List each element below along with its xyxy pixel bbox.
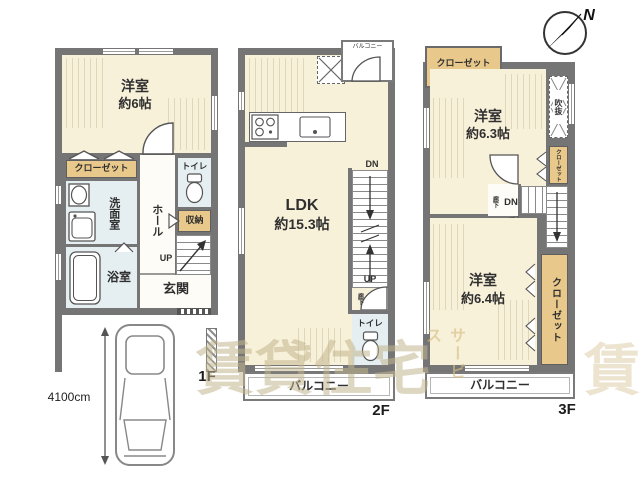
door-arc-icon xyxy=(351,56,381,82)
floor2-small-balcony-label: バルコニー xyxy=(342,44,393,52)
folding-door-icon xyxy=(536,150,548,182)
floor2-balcony: バルコニー xyxy=(243,372,395,401)
floor2-hallway-label: 廊下 xyxy=(355,289,363,309)
floor2-label: 2F xyxy=(366,402,396,421)
watermark-tile-char: 賃 xyxy=(584,326,640,407)
window xyxy=(255,366,343,371)
floor3-room2-size: 約6.4帖 xyxy=(446,291,520,307)
floor1-room-name: 洋室 xyxy=(105,78,165,96)
floor3-top-closet-label: クローゼット xyxy=(426,58,501,69)
floor1-toilet-label: トイレ xyxy=(178,161,211,172)
stove-icon xyxy=(251,114,279,140)
folding-door-icon xyxy=(66,150,137,160)
folding-door-icon xyxy=(525,316,537,352)
compass-north-label: N xyxy=(580,6,598,26)
toilet-icon xyxy=(360,331,381,362)
floor2-balcony-label: バルコニー xyxy=(289,379,349,394)
floor-plan: 洋室 約6帖 クローゼット 洗面室 浴室 ホール xyxy=(0,0,640,480)
door-arc-icon xyxy=(489,154,519,185)
door-arc-icon xyxy=(142,122,175,155)
window xyxy=(139,49,173,54)
floor2-ldk-size: 約15.3帖 xyxy=(256,216,348,234)
floor1-room-size: 約6帖 xyxy=(102,96,168,112)
floor3-void-label: 吹抜 xyxy=(553,90,563,124)
window xyxy=(239,208,244,254)
floor3-room1-name: 洋室 xyxy=(458,108,518,126)
floor1-label: 1F xyxy=(192,368,222,387)
floor2-toilet-label: トイレ xyxy=(352,318,388,329)
window xyxy=(56,186,61,204)
window xyxy=(424,108,429,148)
car-icon xyxy=(112,322,178,468)
kitchen-wall-stub xyxy=(245,142,287,147)
window xyxy=(424,282,429,334)
floor3-stairs-top xyxy=(521,186,547,214)
step-line xyxy=(140,273,175,275)
stairs-up-arrow-icon xyxy=(176,235,211,275)
toilet-icon xyxy=(184,173,205,204)
door-arc-icon xyxy=(360,286,388,311)
floor3-hallway-label: 廊下 xyxy=(490,192,498,212)
floor1-bath-label: 浴室 xyxy=(100,270,138,285)
storage-door-icon xyxy=(168,212,180,230)
floor3-balcony-label: バルコニー xyxy=(470,378,530,393)
folding-door-icon xyxy=(525,262,537,298)
washing-machine-icon xyxy=(68,183,90,207)
floor1-storage-label: 収納 xyxy=(178,215,211,226)
kitchen-sink-icon xyxy=(299,116,331,138)
floor3-mid-closet-label: クローゼット xyxy=(554,148,561,182)
floor1-up-label: UP xyxy=(156,253,176,264)
floor3-balcony: バルコニー xyxy=(425,372,575,399)
stairs-down-arrow-icon xyxy=(549,188,565,246)
window xyxy=(212,96,217,130)
entrance-door xyxy=(177,308,211,315)
floor1-washroom-label: 洗面室 xyxy=(106,186,120,240)
vanity-sink-icon xyxy=(68,211,96,242)
stairs-bottom-wall xyxy=(544,248,570,252)
window xyxy=(103,49,135,54)
site-wall xyxy=(55,315,62,372)
floor1-closet-label: クローゼット xyxy=(66,163,137,174)
floor3-label: 3F xyxy=(552,401,582,420)
floor1-hall-label: ホール xyxy=(149,194,163,246)
window xyxy=(569,84,574,124)
floor2-ldk-name: LDK xyxy=(262,196,342,216)
gate-hatch xyxy=(206,328,217,372)
floor3-room1-size: 約6.3帖 xyxy=(451,126,525,142)
floor3-right-closet-label: クローゼット xyxy=(548,262,561,358)
bath-door-icon xyxy=(113,242,135,254)
window xyxy=(239,92,244,110)
stairs-arrows-icon xyxy=(352,170,388,288)
floor2-up-label: UP xyxy=(358,274,382,285)
window xyxy=(56,254,61,280)
bathtub-icon xyxy=(69,251,101,305)
floor2-dn-label: DN xyxy=(358,159,386,170)
floor1-entrance-label: 玄関 xyxy=(150,281,202,297)
parking-length-label: 4100cm xyxy=(42,390,96,405)
window xyxy=(465,366,529,371)
floor3-room2-name: 洋室 xyxy=(453,272,513,290)
